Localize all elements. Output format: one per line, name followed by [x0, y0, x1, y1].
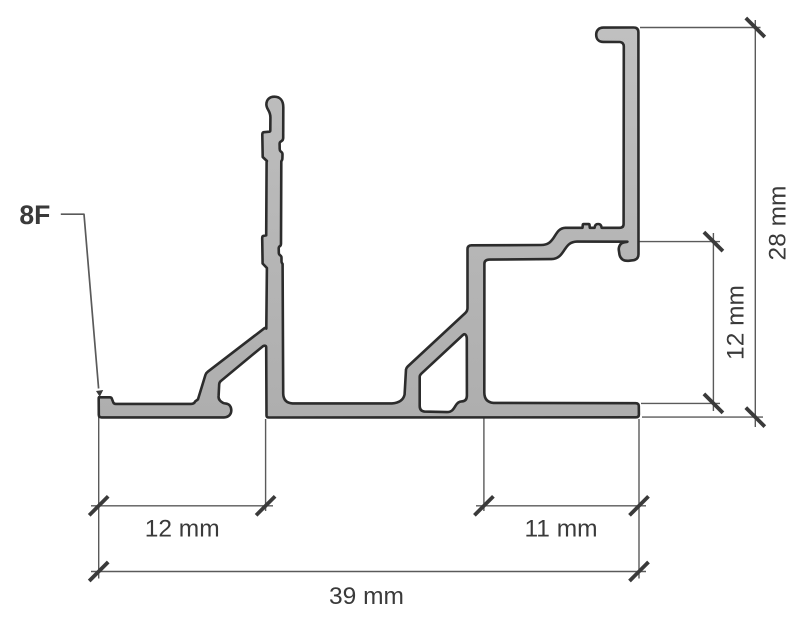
svg-text:8F: 8F — [19, 200, 50, 230]
svg-text:11 mm: 11 mm — [524, 516, 597, 543]
svg-text:39 mm: 39 mm — [329, 583, 404, 610]
svg-text:12 mm: 12 mm — [145, 516, 220, 543]
svg-text:12 mm: 12 mm — [723, 285, 750, 360]
svg-text:28 mm: 28 mm — [765, 186, 792, 261]
